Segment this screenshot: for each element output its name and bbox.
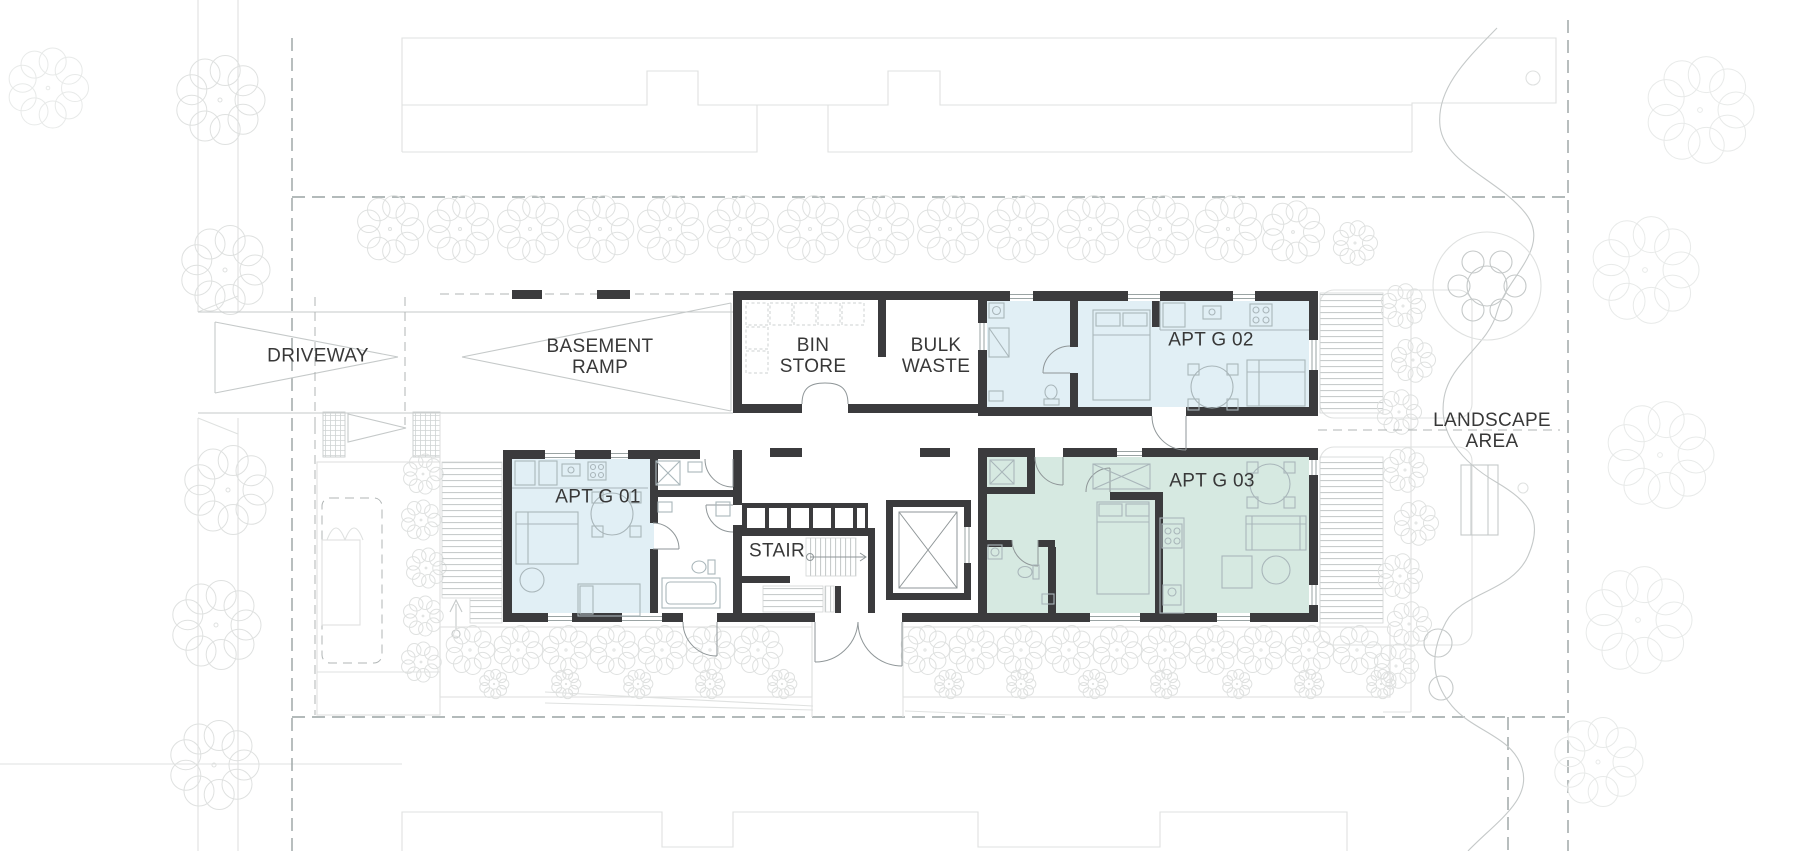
- storage-lockers: [747, 508, 865, 528]
- deck-apt-g02: [1320, 293, 1383, 413]
- label-landscape-line1: LANDSCAPE: [1433, 410, 1551, 431]
- label-bin-store-line2: STORE: [780, 356, 847, 377]
- trees-hedge-top: [358, 196, 1378, 266]
- garden-left: [317, 454, 446, 715]
- shrub-beds: [440, 622, 1396, 717]
- trees-street-left: [9, 48, 273, 810]
- planter: [323, 412, 345, 457]
- neighbour-building-top: [402, 38, 1556, 152]
- site-boundary: [292, 20, 1568, 851]
- label-bulk-waste: BULK WASTE: [902, 335, 970, 377]
- label-apt-g01: APT G 01: [555, 487, 640, 508]
- label-bulk-waste-line1: BULK: [902, 335, 970, 356]
- gate-arrow: [348, 414, 406, 442]
- neighbour-building-bottom: [402, 812, 1347, 851]
- apt-g02-terrace-door: [1152, 416, 1186, 450]
- apt-g03-area: [987, 457, 1309, 613]
- floor-plan: DRIVEWAY BASEMENT RAMP BIN STORE BULK WA…: [0, 0, 1800, 851]
- deck-steps: [470, 598, 502, 623]
- label-basement-ramp-line1: BASEMENT: [547, 336, 654, 357]
- trees-right-faint: [1555, 57, 1754, 807]
- label-bin-store: BIN STORE: [780, 335, 847, 377]
- entrance-arrow: [450, 600, 462, 630]
- deck-apt-g03: [1320, 457, 1383, 623]
- label-stair: STAIR: [749, 541, 805, 562]
- deck-apt-g01: [442, 462, 502, 598]
- elevator: [899, 512, 973, 588]
- label-landscape-line2: AREA: [1433, 431, 1551, 452]
- label-bulk-waste-line2: WASTE: [902, 356, 970, 377]
- wall-stub: [512, 290, 542, 299]
- planter: [413, 412, 440, 457]
- wall-stub: [597, 290, 630, 299]
- label-basement-ramp-line2: RAMP: [547, 357, 654, 378]
- apt-g02-area: [987, 301, 1309, 407]
- label-apt-g02: APT G 02: [1168, 330, 1253, 351]
- garden-table: [1433, 232, 1541, 340]
- entrance-door-right: [858, 622, 902, 666]
- label-bin-store-line1: BIN: [780, 335, 847, 356]
- bin-store-double-door: [802, 383, 848, 404]
- label-apt-g03: APT G 03: [1169, 471, 1254, 492]
- label-driveway: DRIVEWAY: [267, 346, 369, 367]
- label-basement-ramp: BASEMENT RAMP: [547, 336, 654, 378]
- shrubs-east-decks: [1374, 284, 1438, 689]
- entrance-door-left: [815, 622, 858, 662]
- label-landscape-area: LANDSCAPE AREA: [1433, 410, 1551, 452]
- stair-lower-flight: [763, 586, 823, 612]
- garden-bench: [1461, 465, 1498, 535]
